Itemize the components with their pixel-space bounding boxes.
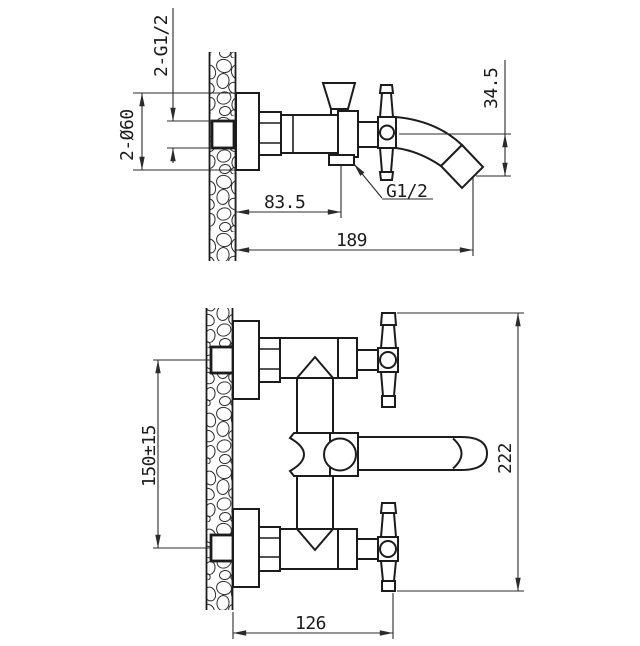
mounting-nut-bottom — [259, 527, 280, 571]
dim-inlet-thread: 2-G1/2 — [151, 8, 212, 163]
dim-shower-outlet-offset: 83.5 — [236, 166, 341, 218]
dim-label-total-reach: 189 — [336, 230, 367, 251]
cross-handle-bottom — [378, 503, 398, 591]
dim-label-inlet-thread: 2-G1/2 — [151, 15, 172, 77]
valve-body — [281, 111, 358, 157]
handle-screw-cap — [380, 126, 394, 140]
dim-inlet-spacing: 150±15 — [139, 360, 211, 548]
dim-total-reach: 189 — [236, 172, 473, 256]
handle-screw-cap — [380, 352, 396, 368]
diverter-body — [290, 433, 358, 476]
dim-label-overall-height: 222 — [495, 443, 516, 474]
mounting-nut — [259, 112, 281, 155]
shower-outlet — [329, 155, 354, 165]
spout — [396, 117, 483, 188]
dim-label-escutcheon-diameter: 2-Ø60 — [117, 109, 138, 161]
leader-shower-outlet-thread: G1/2 — [354, 164, 433, 202]
escutcheon-plate-top — [233, 321, 259, 399]
valve-body-top — [280, 338, 357, 378]
dim-overall-depth: 126 — [233, 593, 393, 639]
dim-label-shower-outlet-offset: 83.5 — [264, 192, 305, 213]
faucet-side — [212, 83, 483, 188]
dim-label-overall-depth: 126 — [295, 613, 326, 634]
front-view: 150±15 222 126 — [139, 308, 524, 639]
wall-section-side — [209, 52, 236, 261]
diverter-cap — [324, 439, 356, 471]
handle-stem-top — [357, 350, 378, 370]
wall-inlet-socket-top — [211, 347, 233, 373]
wall-hatch — [209, 52, 236, 261]
side-view: 2-Ø60 2-G1/2 34.5 83.5 — [117, 8, 511, 261]
dim-label-shower-outlet-thread: G1/2 — [386, 181, 427, 202]
escutcheon-plate-bottom — [233, 509, 259, 587]
escutcheon-plate — [236, 93, 259, 170]
wall-inlet-socket-bottom — [211, 535, 233, 561]
dim-label-inlet-spacing: 150±15 — [139, 425, 160, 487]
faucet-front — [211, 313, 487, 591]
spout-front — [358, 437, 487, 470]
mounting-nut-top — [259, 338, 280, 382]
valve-body-bottom — [280, 529, 357, 569]
dim-label-spout-drop: 34.5 — [481, 68, 502, 109]
wall-inlet-socket — [212, 121, 234, 148]
cross-handle — [378, 85, 396, 180]
handle-stem-bottom — [357, 539, 378, 559]
cross-handle-top — [378, 313, 398, 407]
handle-stem — [358, 122, 378, 147]
handle-screw-cap — [380, 541, 396, 557]
faucet-installation-drawing: 2-Ø60 2-G1/2 34.5 83.5 — [0, 0, 640, 646]
